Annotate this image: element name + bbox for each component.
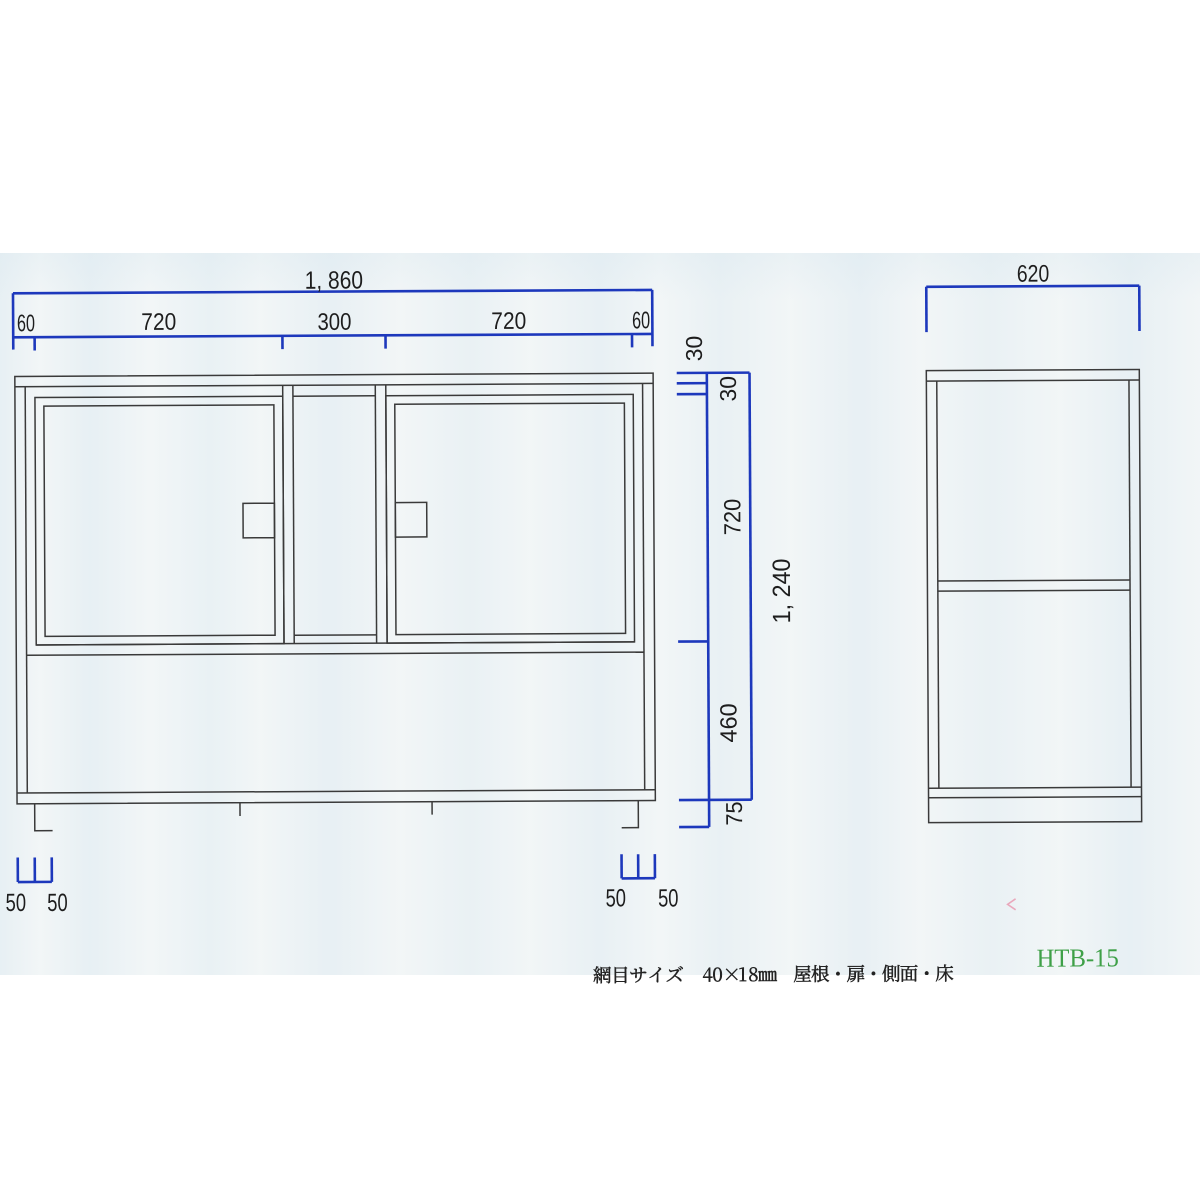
svg-text:50: 50 [47,888,68,917]
svg-text:620: 620 [1017,260,1050,288]
svg-text:720: 720 [141,308,176,335]
svg-text:720: 720 [719,499,746,536]
svg-text:30: 30 [681,336,707,362]
svg-text:50: 50 [605,884,626,913]
svg-text:75: 75 [721,801,747,825]
svg-text:720: 720 [491,307,526,334]
svg-text:1, 860: 1, 860 [305,266,364,294]
svg-text:HTB-15: HTB-15 [1036,944,1118,973]
svg-text:1, 240: 1, 240 [768,558,796,623]
svg-text:460: 460 [715,703,741,742]
svg-text:60: 60 [632,307,650,334]
svg-text:50: 50 [5,888,26,917]
svg-text:60: 60 [17,310,35,337]
svg-text:300: 300 [317,308,351,335]
svg-text:30: 30 [715,376,741,402]
svg-text:50: 50 [658,884,679,913]
